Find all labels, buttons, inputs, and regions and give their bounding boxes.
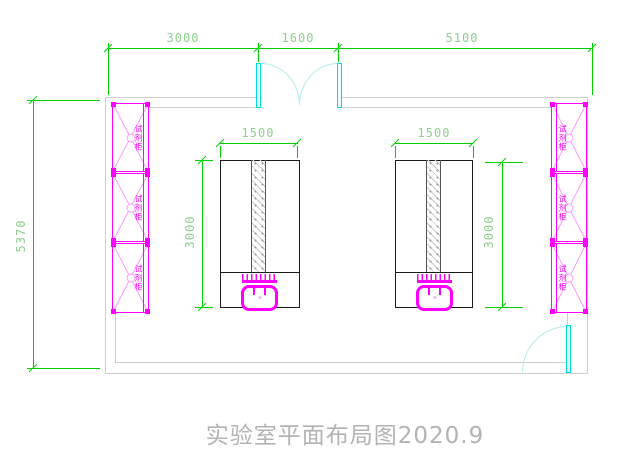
bench-divider-line <box>220 272 300 273</box>
corner-square <box>550 172 555 177</box>
corner-square <box>111 242 116 247</box>
corner-square <box>145 102 150 107</box>
dim-label-bench2-depth: 3000 <box>482 204 496 260</box>
cabinet-front-line <box>143 104 144 171</box>
dim-label-bench2-width: 1500 <box>406 126 462 140</box>
dim-label-top-mid: 1600 <box>270 31 326 45</box>
dim-label-top-right: 5100 <box>434 31 490 45</box>
corner-square <box>583 242 588 247</box>
cabinet-front-line <box>143 174 144 241</box>
cabinet-front-line <box>556 244 557 312</box>
reagent-cabinet: 试剂柜 <box>112 103 149 172</box>
extension-line <box>485 162 523 163</box>
extension-line <box>27 100 100 101</box>
door-swing-arc <box>299 63 338 105</box>
corner-square <box>550 102 555 107</box>
extension-line <box>195 160 213 161</box>
sink-icon <box>416 285 453 311</box>
corner-square <box>550 309 555 314</box>
extension-line <box>592 43 593 95</box>
reagent-cabinet: 试剂柜 <box>551 243 587 313</box>
sink-drain-dot <box>433 296 436 299</box>
corner-square <box>583 309 588 314</box>
dimension-line-left <box>33 100 34 368</box>
cabinet-front-line <box>556 104 557 171</box>
cabinet-front-line <box>556 174 557 241</box>
reagent-cabinet: 试剂柜 <box>551 103 587 172</box>
extension-line <box>473 146 474 158</box>
reagent-cabinet: 试剂柜 <box>551 173 587 242</box>
sink-faucet-icon <box>242 274 277 283</box>
corner-square <box>111 309 116 314</box>
sink-faucet-icon <box>417 274 452 283</box>
corner-square <box>145 309 150 314</box>
corner-square <box>145 172 150 177</box>
cabinet-label: 试剂柜 <box>134 265 142 292</box>
dimension-line-bench1-width <box>220 143 298 144</box>
cabinet-label: 试剂柜 <box>558 124 566 151</box>
reagent-cabinet: 试剂柜 <box>112 243 149 313</box>
extension-line <box>297 146 298 158</box>
cabinet-label: 试剂柜 <box>558 265 566 292</box>
door-leaf <box>566 325 571 373</box>
dimension-line-bench2-depth <box>502 162 503 307</box>
corner-square <box>111 102 116 107</box>
bench-divider-line <box>395 272 473 273</box>
sink-tick <box>253 288 255 295</box>
floor-plan-canvas: 3000 1600 5100 5370 试剂柜 试剂柜 试剂柜 试剂柜 <box>0 0 619 469</box>
bench-hatch-strip <box>426 160 441 273</box>
reagent-cabinet: 试剂柜 <box>112 173 149 242</box>
bench-hatch-strip <box>251 160 266 273</box>
sink-tick <box>439 288 441 295</box>
drawing-title: 实验室平面布局图2020.9 <box>155 416 535 450</box>
extension-line <box>27 368 100 369</box>
cabinet-label: 试剂柜 <box>134 124 142 151</box>
cabinet-label: 试剂柜 <box>134 194 142 221</box>
corner-square <box>583 102 588 107</box>
corner-square <box>550 242 555 247</box>
door-swing-arc <box>261 63 300 105</box>
corner-square <box>583 172 588 177</box>
sink-tick <box>264 288 266 295</box>
dim-label-left: 5370 <box>14 208 28 264</box>
cabinet-label: 试剂柜 <box>558 194 566 221</box>
extension-line <box>395 146 396 158</box>
extension-line <box>220 146 221 158</box>
sink-icon <box>241 285 278 311</box>
dimension-line-bench1-depth <box>202 160 203 307</box>
dimension-line-bench2-width <box>395 143 473 144</box>
dim-label-bench1-width: 1500 <box>230 126 286 140</box>
dim-label-top-left: 3000 <box>155 31 211 45</box>
dim-label-bench1-depth: 3000 <box>183 204 197 260</box>
corner-square <box>111 172 116 177</box>
extension-line <box>108 43 109 95</box>
door-leaf <box>256 63 261 108</box>
sink-tick <box>428 288 430 295</box>
extension-line <box>195 307 213 308</box>
corner-square <box>145 242 150 247</box>
door-leaf <box>337 63 342 108</box>
sink-drain-dot <box>258 296 261 299</box>
dimension-line-top <box>108 48 592 49</box>
extension-line <box>485 307 523 308</box>
cabinet-front-line <box>143 244 144 312</box>
